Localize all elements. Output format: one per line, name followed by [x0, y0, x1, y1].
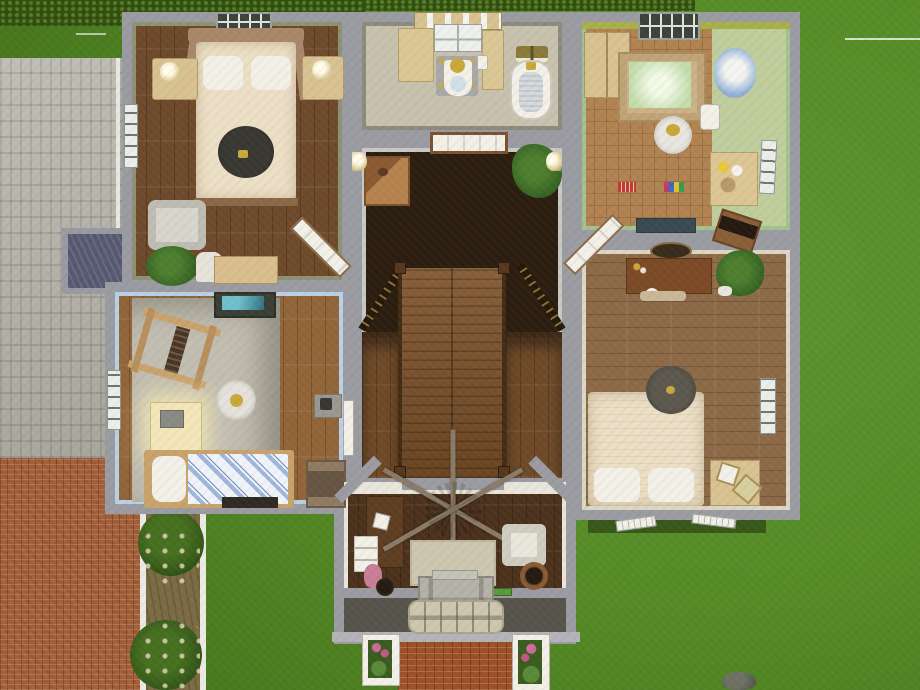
- stair-rail-left: [398, 268, 402, 478]
- hall-sconce-right[interactable]: [546, 152, 561, 171]
- toy-xylophone[interactable]: [618, 182, 636, 192]
- desk-laptop[interactable]: [160, 410, 184, 428]
- foyer-dark-pot[interactable]: [376, 578, 394, 596]
- bath-counter-left[interactable]: [398, 28, 434, 82]
- towel-rack[interactable]: [516, 46, 548, 62]
- stairwell-flank-left: [362, 332, 400, 478]
- hall-cabinet-clutter: [378, 168, 388, 176]
- hall-sconce-left[interactable]: [352, 152, 367, 171]
- master-left-window[interactable]: [124, 104, 138, 168]
- kids-room-left-window[interactable]: [107, 370, 121, 430]
- mirror-cabinet[interactable]: [434, 24, 482, 52]
- pet-bed-toy: [238, 150, 248, 158]
- planter-left-flowers: [368, 640, 392, 678]
- nursery-right-window[interactable]: [759, 140, 778, 195]
- stair-rail-right: [502, 268, 506, 478]
- tub-faucet: [526, 62, 536, 70]
- roof-gutter: [116, 58, 120, 233]
- master-plant[interactable]: [146, 246, 198, 286]
- foyer-brown-pot[interactable]: [520, 562, 548, 590]
- front-walkway: [398, 642, 512, 690]
- easel-canvas: [164, 326, 190, 374]
- bedroom2-desk-chair[interactable]: [640, 291, 686, 301]
- desk-clutter-gold: [632, 262, 648, 274]
- round-rug-center: [230, 394, 243, 407]
- flower-bush-top[interactable]: [138, 510, 204, 576]
- bedroom2-plant-pot: [718, 286, 732, 296]
- ceiling-fan-hub[interactable]: [425, 482, 481, 538]
- master-pillow-left: [203, 56, 243, 90]
- potty-chair[interactable]: [700, 104, 720, 130]
- tub-basin: [519, 72, 543, 112]
- canopy-bed-headboard: [188, 28, 304, 42]
- flower-bush-bottom[interactable]: [130, 620, 202, 690]
- activity-table-top: [222, 296, 264, 310]
- lot-boundary-line: [845, 38, 920, 40]
- nursery-top-window[interactable]: [638, 12, 700, 40]
- toilet-bowl: [450, 76, 466, 92]
- high-chair[interactable]: [714, 48, 756, 98]
- master-armchair[interactable]: [148, 200, 206, 250]
- kids-bed-pillow: [152, 456, 186, 502]
- sims-top-down-lot: [0, 0, 920, 690]
- toy-blocks[interactable]: [664, 182, 684, 192]
- garden-rock: [722, 672, 756, 690]
- table-lamp-right[interactable]: [312, 60, 332, 80]
- table-lamp-left[interactable]: [160, 62, 180, 82]
- hall-console-cabinet[interactable]: [364, 156, 410, 206]
- lot-boundary-dash: [76, 33, 106, 35]
- bedroom2-pillow-left: [594, 468, 640, 502]
- toy-green-bar[interactable]: [492, 588, 512, 596]
- master-footboard: [194, 198, 298, 206]
- porch-mat: [408, 600, 504, 634]
- toilet-tank-medallion: [450, 58, 465, 73]
- kids-floor-mat: [222, 497, 278, 508]
- newel-post-nw: [394, 262, 406, 274]
- newel-post-ne: [498, 262, 510, 274]
- nursery-dark-rug: [636, 218, 696, 233]
- roof-skylight[interactable]: [62, 228, 128, 294]
- toilet-paper-roll[interactable]: [477, 55, 488, 70]
- foyer-armchair[interactable]: [502, 524, 546, 566]
- kids-room-door[interactable]: [343, 400, 354, 456]
- table-gold-plate: [666, 124, 680, 136]
- bedroom2-pillow-right: [648, 468, 694, 502]
- bathroom-door[interactable]: [430, 132, 508, 154]
- front-door-step: [432, 570, 478, 580]
- planter-right-flowers: [518, 640, 542, 684]
- wall-shelf-item: [320, 398, 332, 410]
- pet-bed2-toy: [666, 386, 675, 394]
- hedge-row-right: [365, 0, 695, 11]
- crib-mattress: [629, 62, 691, 108]
- master-desk[interactable]: [214, 256, 278, 284]
- master-pillow-right: [251, 56, 291, 90]
- bedroom2-right-window[interactable]: [760, 378, 776, 434]
- changing-table-toys: [716, 158, 746, 194]
